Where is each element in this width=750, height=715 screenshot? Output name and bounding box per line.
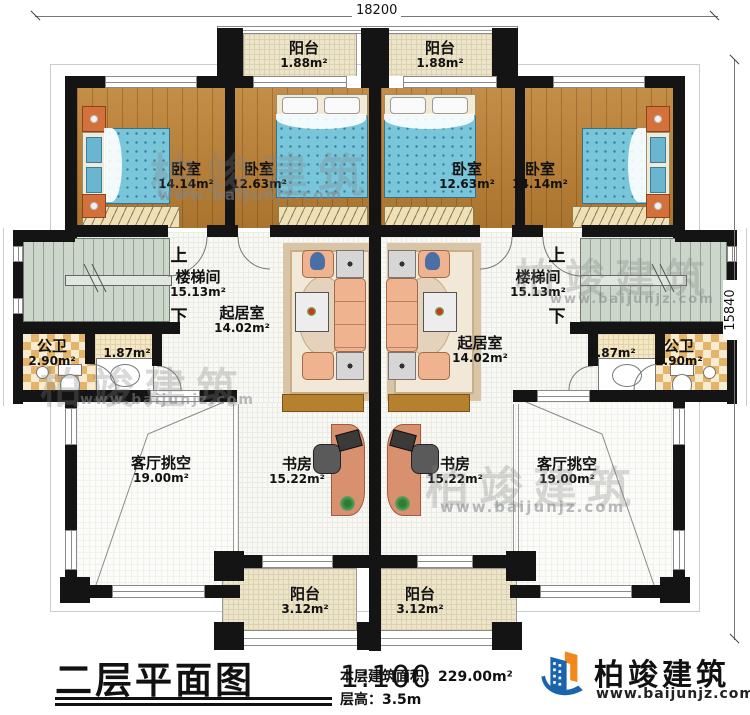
column [217, 28, 243, 78]
brand-logo-icon [536, 646, 590, 700]
room-label-stair-left: 楼梯间 15.13m² [170, 269, 226, 299]
floor-area-line: 本层建筑面积：229.00m² [340, 666, 513, 686]
column [214, 622, 244, 650]
floor-plan-canvas: 阳台 1.88m² 阳台 1.88m² 卧室 14.14m² 卧室 12.63m… [0, 0, 750, 715]
window [65, 530, 77, 570]
dimension-top-value: 18200 [352, 3, 401, 18]
floor-height-value: 3.5m [382, 692, 421, 708]
wall [270, 225, 369, 237]
balcony-door [389, 76, 403, 88]
wall [381, 555, 417, 568]
window [105, 76, 197, 88]
floor-area-label: 本层建筑面积： [340, 669, 438, 685]
wall [381, 225, 480, 237]
floor-area-value: 229.00m² [438, 669, 513, 685]
room-label-bath-right: 公卫 2.90m² [655, 338, 702, 368]
room-label-bedroom-right-outer: 卧室 14.14m² [512, 161, 568, 191]
party-wall [369, 28, 381, 651]
brand-website: www.baijunjz.com [596, 686, 750, 702]
title-underline [55, 697, 332, 700]
wall [65, 445, 77, 530]
watermark-url: www.baijunjz.com [80, 392, 255, 408]
room-label-living-left: 起居室 14.02m² [214, 305, 270, 335]
dimension-line-right [734, 60, 735, 640]
column [492, 28, 518, 78]
dimension-right-value: 15840 [723, 280, 738, 340]
window [673, 408, 685, 445]
window [540, 585, 632, 598]
room-label-bedroom-right-inner: 卧室 12.63m² [439, 161, 495, 191]
window [253, 76, 347, 88]
watermark-url: www.baijunjz.com [550, 292, 715, 307]
watermark-url: www.baijunjz.com [440, 498, 625, 516]
column [361, 28, 389, 88]
balcony-door [347, 76, 361, 88]
window [727, 246, 737, 262]
bath-right-vestibule-area: 1.87m² [588, 346, 635, 360]
stair-down-label: 下 [171, 302, 188, 327]
window [13, 246, 23, 262]
room-label-study-left: 书房 15.22m² [269, 456, 325, 486]
floor-height-line: 层高：3.5m [340, 689, 421, 709]
wall [582, 225, 685, 237]
wall [333, 555, 369, 568]
floor-height-label: 层高： [340, 692, 382, 708]
room-label-living-right: 起居室 14.02m² [452, 335, 508, 365]
window [13, 298, 23, 314]
window [112, 585, 205, 598]
corner-column [60, 577, 90, 603]
corner-column [660, 577, 690, 603]
wall [513, 390, 537, 402]
window [417, 555, 473, 568]
wall [205, 585, 240, 598]
drawing-title: 二层平面图 [55, 650, 255, 704]
wall [13, 322, 180, 334]
room-label-balcony-top-right: 阳台 1.88m² [416, 40, 463, 70]
room-label-balcony-top-left: 阳台 1.88m² [280, 40, 327, 70]
window [673, 530, 685, 570]
wall [673, 445, 685, 530]
wall [570, 322, 737, 334]
window [553, 76, 645, 88]
stair-up-label: 上 [171, 241, 188, 266]
column [492, 622, 522, 650]
corner-column [214, 551, 244, 581]
interior-window [537, 390, 590, 402]
wall [590, 390, 737, 402]
corner-column [506, 551, 536, 581]
watermark-url: www.baijunjz.com [158, 186, 343, 204]
wall [65, 76, 77, 238]
column [357, 622, 379, 650]
room-label-balcony-bottom-left: 阳台 3.12m² [281, 586, 328, 616]
title-underline [55, 703, 332, 706]
wall [65, 225, 168, 237]
wall [673, 76, 685, 238]
window [403, 76, 497, 88]
room-label-balcony-bottom-right: 阳台 3.12m² [396, 586, 443, 616]
room-label-void-left: 客厅挑空 19.00m² [131, 455, 191, 485]
window [262, 555, 333, 568]
wall [510, 585, 540, 598]
